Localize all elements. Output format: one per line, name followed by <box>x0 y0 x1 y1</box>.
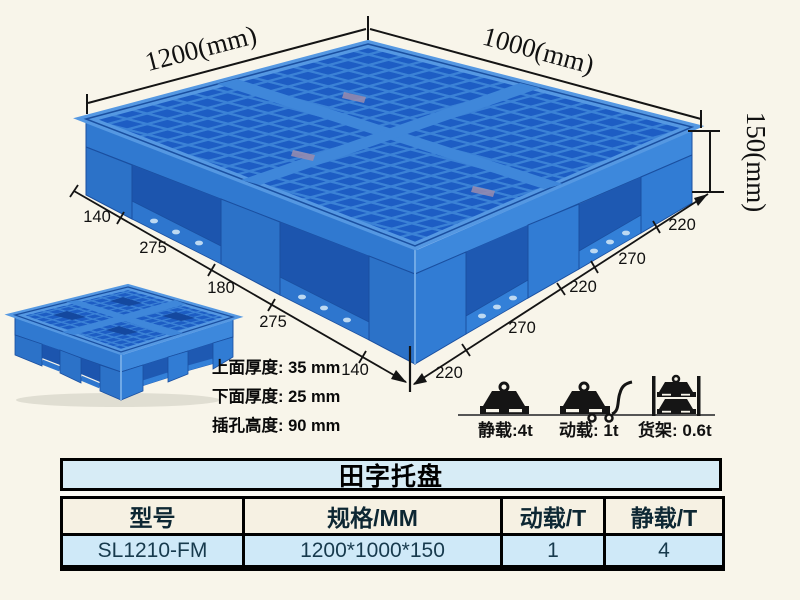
product-spec-sheet: 1200(mm) 1000(mm) 150(mm) 140 275 180 <box>0 0 800 600</box>
dim-label-1000: 1000(mm) <box>479 21 597 80</box>
rack-load-icon <box>652 376 701 416</box>
svg-text:275: 275 <box>259 313 287 331</box>
svg-text:270: 270 <box>618 250 646 268</box>
dynamic-load-label: 动载: 1t <box>559 420 619 440</box>
spec-top-thickness: 上面厚度: 35 mm <box>212 354 412 383</box>
table-row: SL1210-FM 1200*1000*150 1 4 <box>62 535 724 569</box>
dim-label-150: 150(mm) <box>741 112 771 213</box>
spec-fork-height: 插孔高度: 90 mm <box>212 412 412 441</box>
svg-text:275: 275 <box>139 239 167 257</box>
svg-text:220: 220 <box>668 216 696 234</box>
product-table-grid: 型号 规格/MM 动载/T 静载/T SL1210-FM 1200*1000*1… <box>60 496 725 571</box>
rack-load-label: 货架: 0.6t <box>638 420 712 440</box>
cell-model: SL1210-FM <box>62 535 244 569</box>
table-header-row: 型号 规格/MM 动载/T 静载/T <box>62 498 724 535</box>
svg-text:220: 220 <box>569 278 597 296</box>
load-rating-icons: 静载:4t 动载: 1t 货架: 0.6t <box>452 366 742 451</box>
col-header-model: 型号 <box>62 498 244 535</box>
cell-dynamic-load: 1 <box>502 535 605 569</box>
col-header-spec: 规格/MM <box>244 498 502 535</box>
svg-text:140: 140 <box>83 208 111 226</box>
col-header-dynamic-load: 动载/T <box>502 498 605 535</box>
thickness-specs: 上面厚度: 35 mm 下面厚度: 25 mm 插孔高度: 90 mm <box>212 354 412 441</box>
cell-spec: 1200*1000*150 <box>244 535 502 569</box>
spec-bottom-thickness: 下面厚度: 25 mm <box>212 383 412 412</box>
col-header-static-load: 静载/T <box>605 498 724 535</box>
table-title: 田字托盘 <box>60 458 722 491</box>
static-load-label: 静载:4t <box>478 420 533 440</box>
static-load-icon <box>480 383 529 414</box>
cell-static-load: 4 <box>605 535 724 569</box>
small-pallet-illustration <box>15 287 233 407</box>
dim-label-1200: 1200(mm) <box>142 19 260 77</box>
product-table: 田字托盘 型号 规格/MM 动载/T 静载/T SL1210-FM 1200*1… <box>60 458 722 571</box>
svg-text:270: 270 <box>508 319 536 337</box>
svg-text:180: 180 <box>207 279 235 297</box>
